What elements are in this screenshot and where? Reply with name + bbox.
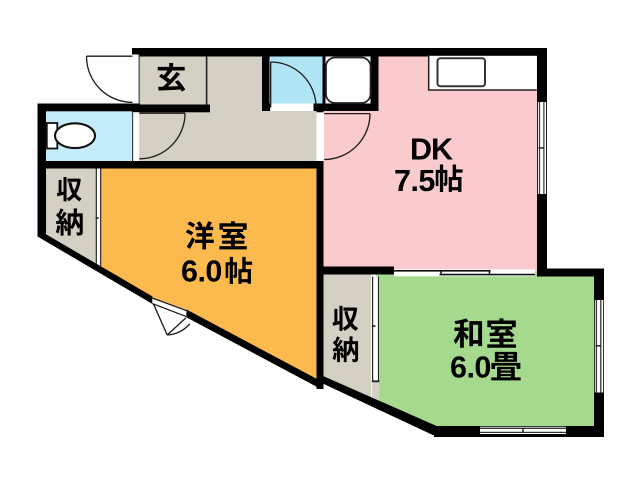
svg-text:7.5: 7.5 xyxy=(394,164,435,198)
svg-text:6.0: 6.0 xyxy=(181,255,222,289)
svg-text:6.0: 6.0 xyxy=(450,351,491,385)
svg-text:DK: DK xyxy=(410,132,453,166)
